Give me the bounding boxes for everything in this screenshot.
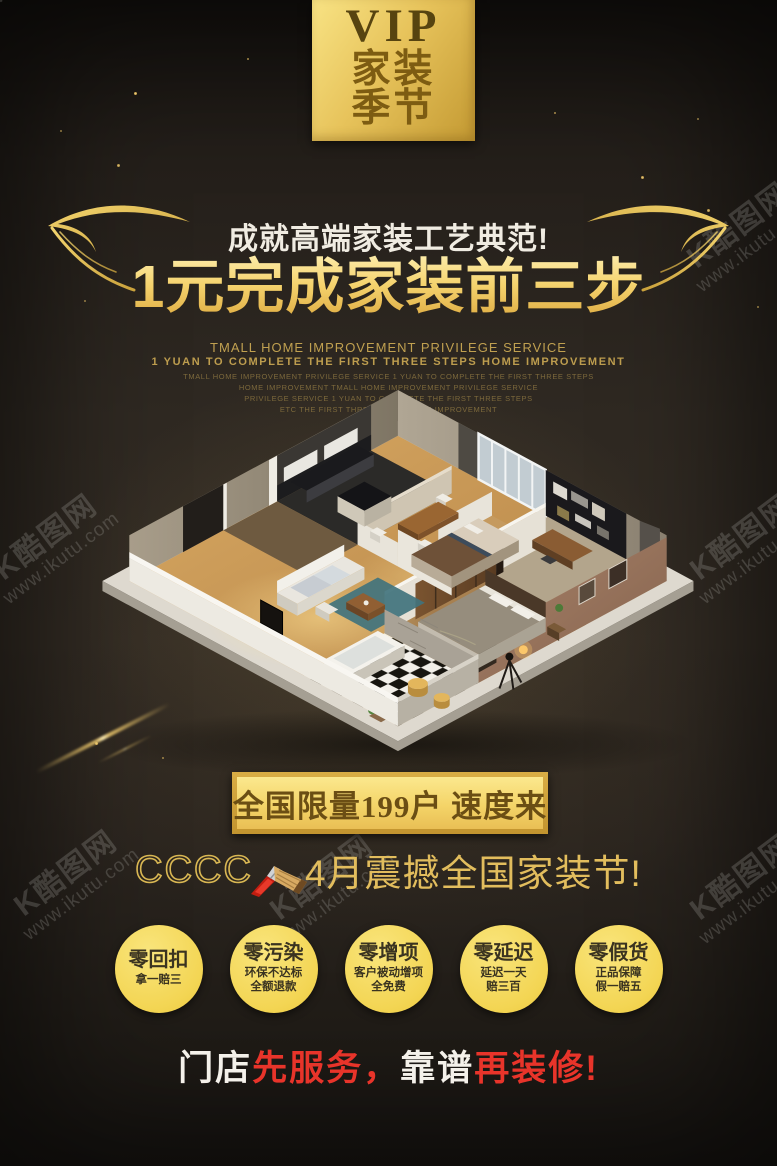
vip-badge-title: VIP <box>312 2 475 51</box>
promise-line: 全额退款 <box>245 981 303 995</box>
en-fineprint-line: TMALL HOME IMPROVEMENT PRIVILEGE SERVICE… <box>0 372 777 383</box>
promise-line: 客户被动增项 <box>354 967 423 981</box>
promise-line: 全免费 <box>354 981 423 995</box>
watermark: K酷图网www.ikutu.com <box>0 0 125 34</box>
slogan-part: 再装修! <box>474 1049 599 1088</box>
poster: K酷图网www.ikutu.com K酷图网www.ikutu.com K酷图网… <box>0 0 777 1166</box>
promise-circle: 零延迟 延迟一天赔三百 <box>460 925 548 1013</box>
promise-title: 零回扣 <box>129 950 189 971</box>
promise-title: 零假货 <box>589 943 649 964</box>
promise-title: 零污染 <box>244 943 304 964</box>
sparkle <box>247 58 249 60</box>
poster-title: 1元完成家装前三步 <box>0 254 777 322</box>
promise-line: 正品保障 <box>596 967 642 981</box>
sparkle <box>697 118 699 120</box>
promise-title: 零延迟 <box>474 943 534 964</box>
promise-line: 赔三百 <box>481 981 527 995</box>
sparkle <box>641 176 644 179</box>
paint-brush-icon <box>249 848 311 898</box>
en-tagline-2: 1 YUAN TO COMPLETE THE FIRST THREE STEPS… <box>0 356 777 368</box>
sparkle <box>117 164 120 167</box>
vip-badge-row1: 家装 <box>312 51 475 89</box>
apartment-illustration <box>80 386 700 784</box>
cta-label: 全国限量199户 速度来 <box>237 777 543 829</box>
vip-badge-row2: 季节 <box>312 90 475 128</box>
promise-line: 环保不达标 <box>245 967 303 981</box>
promise-circle: 零假货 正品保障假一赔五 <box>575 925 663 1013</box>
event-line: CCCC 4月震撼全国家装节! <box>0 843 777 897</box>
vip-badge: VIP 家装 季节 <box>312 0 475 141</box>
promise-line: 假一赔五 <box>596 981 642 995</box>
promise-title: 零增项 <box>359 943 419 964</box>
promise-line: 延迟一天 <box>481 967 527 981</box>
sparkle <box>134 92 137 95</box>
promise-row: 零回扣 拿一赔三 零污染 环保不达标全额退款 零增项 客户被动增项全免费 零延迟… <box>0 925 777 1013</box>
slogan-part: 门店 <box>178 1049 252 1088</box>
event-prefix: CCCC <box>135 849 253 892</box>
promise-line: 拿一赔三 <box>136 974 182 988</box>
sparkle <box>60 130 62 132</box>
slogan: 门店先服务，靠谱再装修! <box>0 1040 777 1091</box>
sparkle <box>554 112 556 114</box>
promise-circle: 零增项 客户被动增项全免费 <box>345 925 433 1013</box>
en-tagline-1: TMALL HOME IMPROVEMENT PRIVILEGE SERVICE <box>0 340 777 355</box>
cta-button[interactable]: 全国限量199户 速度来 <box>232 772 548 834</box>
slogan-part: 靠谱 <box>400 1049 474 1088</box>
event-text: 4月震撼全国家装节! <box>305 843 642 897</box>
slogan-part: 先服务， <box>252 1049 400 1088</box>
promise-circle: 零污染 环保不达标全额退款 <box>230 925 318 1013</box>
poster-subtitle: 成就高端家装工艺典范! <box>0 214 777 258</box>
promise-circle: 零回扣 拿一赔三 <box>115 925 203 1013</box>
